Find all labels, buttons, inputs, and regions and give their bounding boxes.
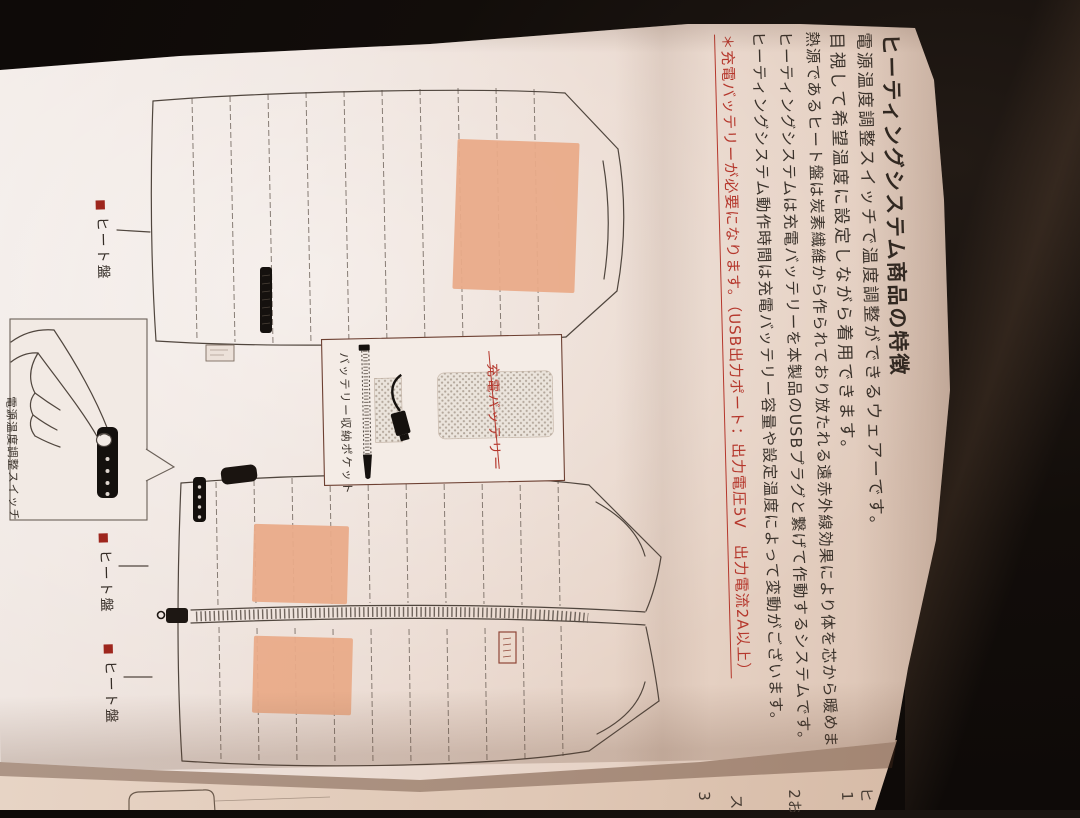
red-square-marker: ■ (97, 532, 111, 546)
brand-tag (499, 632, 516, 663)
vest-back-drawing (117, 88, 624, 361)
red-square-marker: ■ (102, 643, 116, 657)
red-square-marker: ■ (94, 199, 108, 213)
next-page-text-fragment: ヒ (856, 787, 877, 804)
heat-panel-label-front-2: ■ヒート盤 (100, 643, 122, 725)
heat-panel-label-front-1: ■ヒート盤 (95, 532, 117, 614)
usb-connector (220, 464, 258, 485)
switch-callout-inset (10, 319, 174, 520)
temperature-switch-on-vest (193, 477, 206, 522)
collar-outline (646, 557, 661, 611)
zipper-pull-back (260, 267, 272, 333)
manual-page: ヒーティングシステム商品の特徴 電源温度調整スイッチで温度調整ができるウェアーで… (0, 0, 1080, 810)
vest-front-drawing (119, 464, 661, 766)
manual-illustrations (0, 0, 1080, 810)
next-page-text-fragment: ス (726, 794, 747, 811)
front-zipper (158, 605, 646, 625)
fingertip (97, 434, 112, 447)
hem-tag (206, 345, 234, 361)
label-leader-line (117, 230, 150, 232)
collar-outline (617, 149, 624, 291)
heat-panel-front-right (252, 524, 349, 604)
next-page-text-fragment: 1（ (837, 791, 859, 818)
next-page-text-fragment: 2お (784, 789, 806, 816)
charging-battery-label: 充電バッテリー (484, 363, 507, 472)
zipper-slider (166, 608, 188, 623)
next-page-text-fragment: 3 (695, 791, 713, 802)
heat-panel-front-left (252, 636, 353, 716)
callout-pointer (146, 449, 174, 481)
battery-pocket-inset (322, 335, 565, 486)
heat-panel-back (452, 139, 579, 293)
photo-scene: ヒ 1（ 2お ス 3 (0, 0, 1080, 810)
power-switch-label: 電源温度調整スイッチ (3, 396, 22, 521)
heat-panel-label-back: ■ヒート盤 (92, 199, 114, 281)
